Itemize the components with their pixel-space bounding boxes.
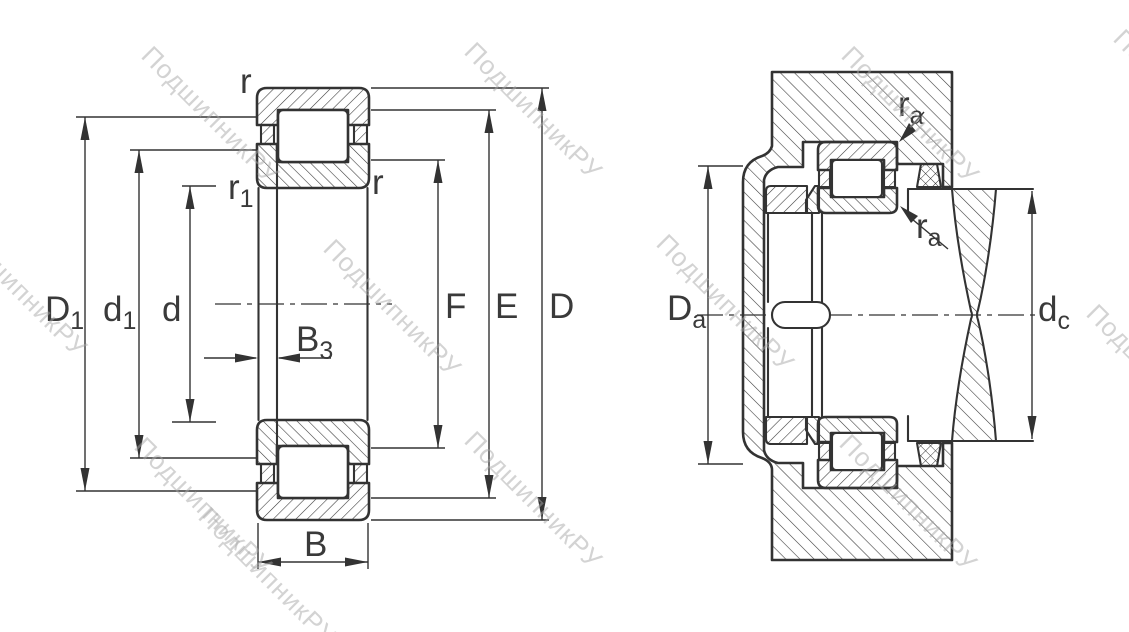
roller-bottom — [278, 446, 348, 498]
label-dc: dc — [1038, 290, 1070, 335]
label-B: B — [304, 525, 327, 564]
watermark-text: ПодшипникРУ — [459, 36, 609, 186]
label-r-top: r — [240, 62, 252, 101]
watermark-text: ПодшипникРУ — [1108, 23, 1129, 173]
label-d: d — [162, 290, 181, 329]
label-D-od: D — [549, 287, 574, 326]
watermark-text: ПодшипникРУ — [0, 213, 93, 363]
label-ra-bottom: ra — [916, 207, 942, 252]
bearing-technical-drawing: D1 d1 d B3 B F E D r r1 r — [0, 0, 1129, 632]
cage-bar-top-right — [354, 125, 367, 144]
drawing-canvas: D1 d1 d B3 B F E D r r1 r — [0, 0, 1129, 632]
cage-top-left-right-view — [819, 170, 830, 187]
label-r-side: r — [372, 163, 384, 202]
label-E: E — [495, 287, 518, 326]
label-d1: d1 — [103, 290, 136, 335]
roller-top-right-view — [832, 160, 882, 197]
watermark-text: ПодшипникРУ — [1081, 298, 1129, 448]
cage-bar-bottom-right — [354, 464, 367, 483]
sleeve-top — [766, 186, 807, 213]
cage-top-right-right-view — [884, 170, 895, 187]
sleeve-bottom — [766, 417, 807, 444]
left-view-bearing-section: D1 d1 d B3 B F E D r r1 r — [45, 62, 574, 569]
watermark-text: ПодшипникРУ — [459, 425, 609, 575]
cage-bar-top-left — [261, 125, 274, 144]
cage-bottom-left-right-view — [819, 443, 830, 460]
dimension-dc — [1028, 191, 1037, 439]
abutment-sleeve — [766, 186, 830, 444]
label-B3: B3 — [296, 320, 333, 365]
label-F: F — [445, 287, 466, 326]
locating-pin — [772, 302, 830, 328]
roller-top — [278, 110, 348, 162]
seal-top — [917, 164, 941, 187]
seal-bottom — [917, 443, 941, 466]
cage-bar-bottom-left — [261, 464, 274, 483]
